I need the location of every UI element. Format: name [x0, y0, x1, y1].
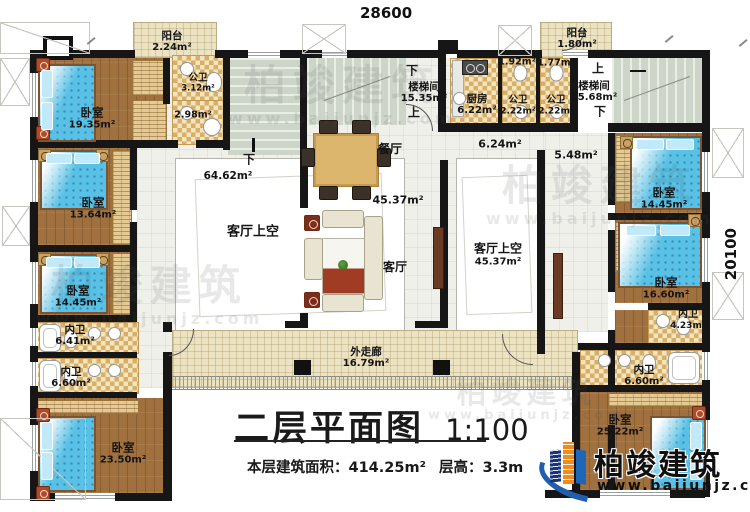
room-label-living: 客厅	[383, 261, 407, 275]
stair-flight-left	[228, 58, 300, 155]
pillow	[74, 153, 100, 164]
wall	[347, 50, 440, 58]
bedroom1-wardrobe	[132, 60, 167, 96]
stairwell-left	[307, 58, 407, 125]
ac-platform	[2, 206, 30, 246]
wall	[163, 352, 172, 493]
wall	[300, 50, 307, 158]
wall	[438, 40, 458, 54]
pillow	[74, 257, 100, 268]
brand-website: www.baijunjz.com	[597, 478, 750, 494]
plant	[338, 260, 348, 270]
ac-platform	[712, 128, 744, 178]
window	[30, 73, 38, 117]
side-table	[304, 215, 320, 231]
wall	[30, 315, 137, 322]
floor-plan-canvas: 柏竣建筑 www.baijunjz.com 柏竣建筑 www.baijunjz.…	[0, 0, 750, 512]
skylight	[302, 24, 346, 54]
window	[30, 160, 38, 202]
wall	[537, 330, 545, 354]
wall	[285, 321, 308, 328]
hall-624-area: 6.24m²	[478, 139, 521, 152]
pillow	[46, 153, 72, 164]
wall	[578, 343, 702, 350]
pillow	[660, 225, 690, 236]
room-label-laundry: 2.98m²	[174, 111, 212, 122]
pillow	[636, 139, 664, 150]
dimension-top: 28600	[360, 4, 412, 22]
wall	[223, 50, 230, 150]
room-label-innerbath4: 内卫6.60m²	[624, 364, 663, 388]
title-block: 二层平面图 1:100	[234, 400, 529, 451]
chair	[319, 120, 338, 134]
wall	[608, 123, 706, 132]
window	[702, 152, 710, 192]
logo-building-icon	[563, 442, 574, 484]
stove	[462, 60, 488, 75]
sink	[598, 354, 611, 367]
living-area: 45.37m²	[372, 195, 423, 208]
stair-left-down: 下	[406, 62, 418, 79]
void-right-label: 客厅上空45.37m²	[474, 242, 522, 267]
stats-area-label: 本层建筑面积：	[247, 460, 349, 476]
void-left-label: 客厅上空	[227, 226, 279, 241]
bedroom1-wardrobe	[132, 100, 167, 142]
room-label-bedroom1: 卧室19.35m²	[69, 107, 115, 132]
sink	[656, 314, 670, 328]
pillow	[666, 139, 694, 150]
title-underline	[234, 440, 486, 442]
room-label-balcony-tr: 阳台1.80m²	[557, 27, 596, 51]
room-label-balcony-tl: 阳台2.24m²	[152, 30, 191, 54]
stats-height-value: 3.3m	[482, 460, 523, 476]
pillow	[46, 257, 72, 268]
room-label-bedroom4: 卧室23.50m²	[100, 442, 146, 467]
bedroom7-wardrobe	[608, 393, 704, 407]
roof-outline	[0, 22, 90, 54]
stats-height-label: 层高：	[439, 460, 483, 476]
window	[30, 262, 38, 304]
room-label-bedroom7: 卧室25.22m²	[597, 414, 643, 439]
wall	[215, 50, 248, 58]
nightstand	[692, 406, 706, 420]
sofa	[322, 210, 364, 228]
side-table	[304, 292, 320, 308]
logo-building-icon	[550, 449, 561, 482]
room-label-innerbath3: 内卫4.23m²	[670, 309, 706, 331]
sofa	[364, 216, 383, 300]
wall	[608, 230, 615, 292]
window	[702, 352, 710, 380]
wall	[537, 150, 545, 335]
wall	[130, 148, 137, 210]
stair-right-down: 下	[594, 103, 606, 120]
bedroom3-wardrobe	[112, 253, 132, 315]
pillow	[41, 102, 53, 130]
room-label-bedroom2: 卧室13.64m²	[70, 197, 116, 222]
sofa	[322, 294, 364, 312]
hall-548-area: 5.48m²	[554, 150, 597, 163]
void-left-area: 64.62m²	[204, 170, 253, 182]
room-label-dining: 餐厅	[378, 143, 402, 157]
room-label-corridor: 外走廊16.79m²	[343, 346, 389, 370]
wc-small1-area: 1.92m²	[498, 58, 536, 69]
wall	[30, 392, 137, 398]
bathtub	[668, 352, 700, 384]
column	[433, 360, 450, 375]
wc-small2-area: 1.77m²	[537, 59, 575, 70]
stair-arrow-mark	[630, 70, 646, 72]
stair-down-label: 下	[243, 151, 255, 168]
stair-right-label: 楼梯间15.68m²	[571, 80, 617, 104]
corridor-sill	[163, 376, 577, 390]
wall	[438, 123, 578, 132]
dining-table	[313, 133, 379, 187]
chair	[352, 186, 371, 200]
wall	[30, 352, 137, 358]
pillow	[41, 452, 53, 480]
room-label-bedroom6: 卧室16.60m²	[643, 277, 689, 302]
stair-left-up: 上	[408, 104, 420, 121]
pillow	[41, 70, 53, 98]
room-label-pubbath-tl: 公卫3.12m²	[181, 74, 215, 95]
stair-left-label: 楼梯间15.35m²	[401, 81, 447, 105]
skylight	[498, 25, 532, 56]
wall	[163, 58, 170, 104]
wall	[588, 50, 612, 58]
stairwell-right	[612, 58, 702, 123]
window	[30, 328, 38, 346]
nightstand	[620, 136, 633, 149]
bedroom4-wardrobe	[37, 400, 139, 414]
room-label-innerbath1: 内卫6.41m²	[55, 324, 94, 348]
ac-platform	[0, 58, 30, 106]
room-label-kitchen: 厨房6.22m²	[457, 93, 496, 117]
room-label-innerbath2: 内卫6.60m²	[51, 366, 90, 390]
bedroom6-passage-floor	[615, 310, 648, 343]
tv-cabinet	[433, 227, 444, 289]
room-label-bedroom5: 卧室14.45m²	[641, 187, 687, 212]
logo-building-icon	[576, 449, 586, 484]
nightstand	[688, 214, 701, 227]
pillow	[626, 225, 656, 236]
stats-area-value: 414.25m²	[349, 460, 426, 476]
sink	[108, 327, 121, 340]
brand-logo: 柏竣建筑 www.baijunjz.com	[534, 438, 744, 504]
window	[702, 238, 710, 282]
wall	[130, 222, 137, 322]
page-title: 二层平面图	[234, 400, 424, 451]
wall	[608, 133, 615, 205]
title-stats: 本层建筑面积：414.25m² 层高：3.3m	[247, 456, 523, 477]
wall	[30, 245, 137, 252]
column	[294, 360, 311, 375]
chair	[319, 186, 338, 200]
pillow	[41, 422, 53, 450]
room-label-pubbath-c2: 公卫2.22m²	[538, 95, 574, 116]
armchair	[304, 238, 323, 280]
window	[248, 50, 280, 58]
room-label-bedroom3: 卧室14.45m²	[55, 285, 101, 310]
wall	[610, 50, 710, 58]
window	[30, 362, 38, 386]
dimension-right: 20100	[722, 228, 740, 280]
chair	[301, 148, 315, 167]
room-label-pubbath-c1: 公卫2.22m²	[500, 95, 536, 116]
dim-tick	[665, 35, 674, 43]
wall	[196, 140, 230, 148]
dim-tick	[739, 39, 748, 47]
sink	[108, 364, 121, 377]
chair	[352, 120, 371, 134]
wall-cabinet	[553, 253, 563, 319]
stair-right-up: 上	[592, 60, 604, 77]
